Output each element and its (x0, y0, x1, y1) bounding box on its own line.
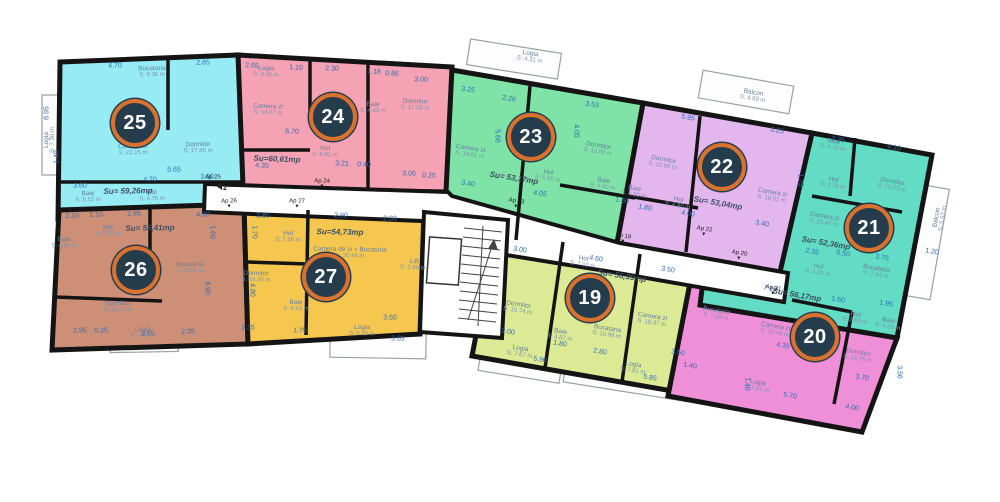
room-area: S: 5.52 m (75, 197, 101, 204)
room-area: S: 16.26 m (241, 277, 270, 284)
room-label-21: DormitorS: 13.23 m (877, 176, 908, 195)
dimension-label: 1.18 (367, 68, 381, 75)
room-label-20: Camera ziS: 20.46 m (759, 321, 791, 340)
room-label-22: Camera ziS: 19.51 m (756, 187, 788, 206)
dimension-label: 0.35 (94, 327, 108, 334)
dimension-label: 0.86 (385, 70, 399, 77)
dimension-label: 3.40 (461, 179, 476, 188)
lift-area: S: 2.89 m² (400, 264, 428, 273)
dimension-label: 3.00 (501, 327, 516, 336)
dimension-label: 1.70 (251, 225, 258, 239)
room-area: S: 3.45 m (253, 72, 279, 79)
dimension-label: 6.70 (285, 128, 299, 135)
dimension-label: 2.35 (181, 328, 195, 335)
dimension-label: 2.80 (593, 347, 608, 356)
dimension-label: 3.50 (661, 265, 676, 274)
room-label-23: DormitorS: 12.86 m (583, 140, 614, 158)
dimension-label: 1.20 (925, 247, 940, 256)
dimension-label: 3.53 (585, 100, 600, 109)
room-area: S: 4.75 m (139, 196, 165, 203)
level-marker: 2 (216, 182, 227, 192)
label-layer: HolS: 7.02 mDormitorS: 15.74 mCamera ziS… (0, 0, 1000, 502)
room-label-22: BalconS: 4.69 m (739, 87, 767, 105)
total-area-label-26: Su= 55,41mp (125, 223, 174, 233)
dimension-label: 3.21 (335, 160, 349, 167)
dimension-label: 3.75 (875, 253, 890, 262)
dimension-label: 3.35 (241, 324, 255, 331)
room-label-26: BaieS: 4.52 m (51, 236, 77, 250)
apartment-number: 24 (321, 106, 344, 129)
entrance-label-21[interactable]: Ap 21▼ (764, 284, 781, 298)
dimension-label: 3.63 (391, 335, 405, 342)
room-area: S: 4.52 m (51, 243, 77, 250)
room-label-21: BalconS: 5.52 m (931, 204, 949, 232)
entrance-arrow-icon: ▼ (221, 204, 237, 209)
dimension-label: 1.75 (797, 173, 804, 187)
room-label-24: Camera ziS: 14.77 m (253, 103, 283, 118)
dimension-label: 2.30 (325, 65, 339, 72)
dimension-label: 4.70 (143, 176, 157, 183)
entrance-label-24[interactable]: Ap 24▼ (314, 178, 330, 190)
apartment-badge-27[interactable]: 27 (302, 253, 350, 301)
dimension-label: 1.40 (744, 377, 751, 391)
dimension-label: 4.35 (776, 341, 791, 350)
total-area-label-23: Su= 53,17mp (489, 170, 539, 187)
dimension-label: 5.85 (643, 373, 658, 382)
dimension-label: 4.70 (108, 62, 122, 69)
dimension-label: 1.80 (553, 339, 568, 348)
dimension-label: 5.70 (783, 391, 798, 400)
apartment-badge-26[interactable]: 26 (112, 246, 160, 294)
dimension-label: 2.35 (805, 247, 820, 256)
dimension-label: 4.00 (845, 403, 860, 412)
dimension-label: 1.40 (683, 361, 698, 370)
apartment-number: 27 (314, 266, 337, 289)
room-label-25: BaieS: 5.52 m (75, 190, 101, 204)
dimension-label: 3.50 (671, 348, 686, 357)
dimension-label: 4.05 (573, 124, 580, 138)
apartment-badge-21[interactable]: 21 (845, 204, 893, 252)
room-label-25: DormitorS: 17.45 m (183, 141, 212, 155)
total-area-label-24: Su=60,61mp (253, 154, 300, 165)
room-label-27: BaieS: 4.63 m (283, 299, 309, 313)
dimension-label: 5.65 (167, 166, 181, 173)
dimension-label: 1.80 (638, 203, 653, 212)
room-label-27: HolS: 7.56 m (275, 230, 301, 244)
room-label-22: DormitorS: 12.86 m (648, 154, 679, 173)
dimension-label: 2.65 (245, 62, 259, 69)
room-label-21: BucatariaS: 7.94 m (861, 263, 890, 281)
dimension-label: 5.95 (681, 113, 696, 122)
dimension-label: 3.60 (73, 182, 87, 189)
room-area: S: 9.05 m (176, 268, 204, 275)
flag-icon (216, 182, 222, 190)
dimension-label: 3.50 (383, 314, 397, 321)
entrance-label-23[interactable]: Ap 23▼ (507, 197, 524, 210)
dimension-label: 5.90 (533, 355, 548, 364)
room-label-24: BaieS: 4.43 m (360, 101, 386, 116)
dimension-label: 3.00 (414, 76, 428, 83)
entrance-label-27[interactable]: Ap 27▼ (289, 198, 305, 209)
room-label-20: HolS: 2.69 m (841, 309, 869, 327)
room-label-19: BucatariaS: 10.99 m (592, 323, 623, 341)
room-area: S: 14.77 m (253, 110, 283, 118)
dimension-label: 4.30 (196, 211, 210, 218)
dimension-label: 2.90 (334, 212, 348, 219)
dimension-label: 4.35 (255, 162, 269, 169)
entrance-label-19[interactable]: Ap 19▼ (614, 232, 631, 245)
apartment-number: 20 (803, 326, 826, 349)
dimension-label: 3.00 (513, 245, 528, 254)
room-area: S: 4.43 m (360, 108, 386, 115)
apartment-badge-19[interactable]: 19 (566, 274, 614, 322)
room-label-24: DormitorS: 17.26 m (400, 98, 429, 113)
dimension-label: 2.95 (73, 327, 87, 334)
dimension-label: 1.10 (289, 64, 303, 71)
apartment-number: 21 (857, 217, 880, 240)
room-area: S: 17.45 m (183, 148, 212, 155)
dimension-label: 5.66 (494, 129, 501, 143)
apartment-badge-20[interactable]: 20 (791, 313, 839, 361)
dimension-label: 3.56 (896, 365, 903, 379)
dimension-label: 1.40 (54, 150, 61, 164)
apartment-number: 25 (123, 112, 146, 135)
room-label-20: DormitorS: 14.75 m (843, 347, 874, 366)
room-label-24: HolS: 6.92 m (312, 145, 338, 160)
dimension-label: 4.90 (204, 281, 211, 295)
apartment-number: 19 (578, 287, 601, 310)
dimension-label: 0.25 (422, 172, 436, 179)
room-label-23: Camera ziS: 19.61 m (454, 143, 485, 161)
room-label-26: BucatariaS: 9.05 m (176, 261, 204, 275)
room-label-19: Camera ziS: 18.37 m (636, 311, 667, 329)
entrance-arrow-icon: ▼ (289, 204, 305, 209)
dimension-label: 1.60 (209, 225, 216, 239)
room-label-23: LogiaS: 4.31 m (516, 48, 544, 66)
room-area: S: 3.85 m (95, 231, 121, 238)
room-label-27: DormitorS: 16.26 m (241, 270, 270, 284)
room-label-20: BucatariaS: 7.18 m (701, 305, 730, 323)
dimension-label: 4.00 (681, 209, 696, 218)
entrance-arrow-icon: ▼ (314, 184, 330, 190)
room-label-20: BaieS: 4.28 m (874, 315, 902, 333)
room-label-22: HolS: 6.80 m (664, 194, 692, 212)
entrance-label-20[interactable]: Ap 20▼ (730, 249, 747, 263)
room-label-27: LogiaS: 6.25 m (349, 324, 375, 338)
total-area-label-22: Su= 53,04mp (693, 194, 743, 211)
dimension-label: 3.05 (402, 170, 416, 177)
dimension-label: 2.10 (65, 212, 79, 219)
entrance-label-22[interactable]: Ap 22▼ (695, 225, 712, 239)
room-label-19: LogiaS: 7.67 m (506, 343, 534, 361)
dimension-label: 1.75 (293, 327, 307, 334)
dimension-label: 2.03 (383, 215, 397, 222)
room-area: S: 4.63 m (283, 306, 309, 313)
room-label-21: HolS: 4.33 m (804, 261, 832, 279)
room-label-25: BucatariaS: 9.36 m (138, 65, 166, 79)
room-label-23: HolS: 5.55 m (534, 167, 562, 185)
dimension-label: 2.85 (127, 210, 141, 217)
dimension-label: 1.10 (89, 211, 103, 218)
dimension-label: 3.25 (461, 85, 476, 94)
room-area: S: 22.15 m (118, 150, 148, 157)
room-label-23: BaieS: 4.00 m (589, 175, 617, 193)
level-number: 2 (223, 185, 227, 192)
dimension-label: 1.60 (831, 295, 846, 304)
apartment-number: 26 (124, 259, 147, 282)
room-label-26: HolS: 3.85 m (95, 224, 121, 238)
room-label-19: DormitorS: 15.74 m (503, 299, 534, 317)
total-area-label-27: Su=54,73mp (316, 227, 363, 237)
apartment-badge-23[interactable]: 23 (507, 113, 555, 161)
apartment-number: 23 (519, 126, 542, 149)
room-area: S: 6.25 m (349, 331, 375, 338)
dimension-label: 3.40 (755, 219, 770, 228)
total-area-label-25: Su= 59,26mp (103, 186, 152, 196)
apartment-badge-25[interactable]: 25 (111, 99, 159, 147)
dimension-label: 4.05 (533, 189, 548, 198)
room-label-21: HolS: 3.76 m (819, 174, 847, 192)
dimension-label: 2.85 (256, 212, 270, 219)
dimension-label: 0.40 (357, 161, 371, 168)
dimension-label: 4.10 (887, 143, 902, 152)
floor-plan: HolS: 7.02 mDormitorS: 15.74 mCamera ziS… (0, 0, 1000, 502)
room-name: Logia (43, 127, 50, 153)
dimension-label: 1.95 (879, 299, 894, 308)
dimension-label: 3.70 (855, 373, 870, 382)
dimension-label: 1.60 (615, 196, 630, 205)
room-label-21: Camera ziS: 20.46 m (808, 211, 840, 230)
dimension-label: 2.26 (502, 94, 517, 103)
room-area: S: 7.56 m (275, 237, 301, 244)
room-area: S: 12.53 m (103, 307, 132, 314)
dimension-label: 3.25 (770, 126, 785, 135)
lift-label: LiftS: 2.89 m² (400, 257, 429, 273)
room-label-26: DormitorS: 12.53 m (103, 300, 132, 314)
dimension-label: 6.95 (44, 106, 51, 120)
apartment-number: 22 (710, 156, 733, 179)
room-area: S: 17.26 m (400, 105, 429, 113)
room-area: S: 9.36 m (138, 72, 166, 79)
dimension-label: 2.85 (196, 59, 210, 66)
dimension-label: 2.65 (141, 330, 155, 337)
apartment-badge-22[interactable]: 22 (698, 143, 746, 191)
entrance-label-26[interactable]: Ap 26▼ (221, 198, 237, 209)
apartment-badge-24[interactable]: 24 (309, 93, 357, 141)
dimension-label: 4.80 (249, 283, 256, 297)
room-area: S: 6.92 m (312, 152, 338, 159)
